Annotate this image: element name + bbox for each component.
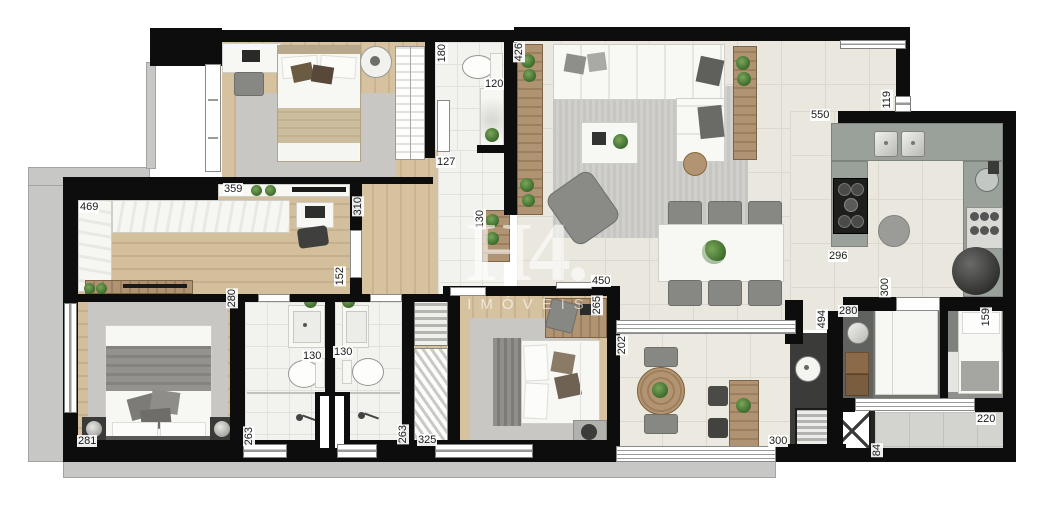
speaker-icon [581, 424, 597, 440]
dimension-label: 450 [591, 275, 611, 287]
sink-drain [911, 141, 915, 145]
wall [504, 42, 517, 215]
kitchen-round-appliance [952, 247, 1000, 295]
bathroom1-sink-counter [288, 305, 325, 348]
dimension-label: 159 [980, 307, 992, 327]
bedroom1-bed [277, 45, 361, 162]
dimension-label: 220 [976, 413, 996, 425]
dimension-label: 300 [879, 277, 891, 297]
plant-icon [520, 178, 534, 192]
dimension-label: 180 [436, 43, 448, 63]
dimension-label: 494 [816, 309, 828, 329]
toilet-tank [342, 360, 352, 384]
wall [827, 398, 855, 412]
wall [940, 311, 948, 398]
bedroom2-bed [105, 325, 212, 440]
balcony-chair [644, 347, 678, 367]
wall [425, 42, 435, 158]
wall [607, 294, 620, 450]
bedroom1-laptop [242, 50, 260, 62]
wall [220, 30, 514, 42]
plant-icon [523, 69, 536, 82]
plant-icon [84, 283, 95, 294]
plant-icon [265, 185, 276, 196]
table-seam [892, 306, 893, 394]
sink-drain [303, 323, 307, 327]
suite2-bed-headboard [493, 338, 521, 426]
laundry-basket [845, 352, 869, 374]
dimension-label: 202 [616, 335, 628, 355]
plant-icon [486, 232, 499, 245]
bathroom2-door [370, 294, 402, 302]
basin [346, 311, 367, 343]
dimension-label: 130 [333, 346, 353, 358]
laundry-sliding-door [855, 398, 975, 411]
wall [150, 28, 222, 66]
service-room-mat [948, 352, 958, 392]
tv-room-chair [297, 225, 329, 249]
plant-icon [736, 56, 750, 70]
side-tray-table [683, 152, 707, 176]
dimension-label: 84 [871, 443, 883, 457]
dining-chair [748, 280, 782, 306]
knob [980, 226, 989, 235]
dimension-label: 263 [397, 424, 409, 444]
bedroom1-chair [234, 72, 264, 96]
bathroom2-sink-counter [342, 305, 369, 348]
hall-door-leaf [556, 282, 592, 289]
balcony-bench [729, 380, 759, 448]
bed-blanket [106, 346, 211, 391]
knob [970, 212, 979, 221]
laundry-door [896, 297, 940, 311]
toilet-tank [315, 358, 325, 388]
dimension-label: 300 [768, 435, 788, 447]
dimension-label: 325 [417, 434, 437, 446]
window [435, 444, 533, 458]
balcony-stool [708, 418, 728, 438]
wall [838, 111, 1016, 123]
door-line [208, 99, 218, 101]
bed-accent-pillow [311, 64, 334, 84]
laundry-sink-icon [847, 322, 869, 344]
wall [448, 294, 460, 440]
sofa-pillow [564, 53, 587, 74]
toilet-bowl [352, 358, 384, 386]
dimension-label: 127 [436, 156, 456, 168]
sink-drain [804, 365, 809, 370]
dimension-label: 280 [226, 288, 238, 308]
dimension-label: 280 [838, 305, 858, 317]
bed-foot [280, 143, 358, 159]
plant-icon [613, 134, 628, 149]
burner [838, 215, 851, 228]
suite2-bed [521, 340, 600, 424]
duvet-seam [580, 343, 581, 423]
dimension-label: 263 [243, 426, 255, 446]
suite2-door [450, 287, 486, 296]
wall [218, 177, 433, 184]
bed-pillow [523, 344, 549, 381]
plant-icon [736, 398, 751, 413]
pocket-door [320, 396, 329, 448]
window [895, 96, 911, 112]
balcony-stool [708, 386, 728, 406]
entry-door [205, 64, 221, 172]
bed-headboard [278, 46, 360, 54]
dimension-label: 130 [302, 350, 322, 362]
burner [844, 198, 858, 212]
floor-plan: 1801204265501191273594693101301522804502… [0, 0, 1050, 518]
dimension-label: 296 [828, 250, 848, 262]
tv-room-sofa-left [78, 200, 112, 292]
plant-icon [251, 185, 262, 196]
bedroom1-wardrobe [395, 46, 425, 160]
burner [851, 215, 864, 228]
dimension-label: 281 [77, 435, 97, 447]
balcony-railing [616, 446, 776, 462]
window [840, 40, 906, 49]
kitchen-appliance-tray [966, 207, 1003, 249]
plant-icon [96, 283, 107, 294]
knob [990, 212, 999, 221]
dimension-label: 265 [591, 295, 603, 315]
wardrobe-divider [410, 47, 411, 159]
plant-icon [486, 214, 499, 227]
knob [980, 212, 989, 221]
coffee-table-book [592, 132, 606, 145]
sofa-pillow [587, 52, 607, 72]
dimension-label: 152 [334, 266, 346, 286]
dimension-label: 130 [474, 209, 486, 229]
dimension-label: 359 [223, 183, 243, 195]
lavabo-door [437, 100, 450, 152]
wall [940, 297, 1003, 311]
balcony-sliding-door [616, 320, 796, 334]
laundry-basket [845, 374, 869, 396]
wall [63, 177, 218, 200]
wall [827, 311, 843, 460]
window [337, 444, 377, 458]
dimension-label: 550 [810, 109, 830, 121]
wall [325, 294, 335, 394]
slab-edge-entry [146, 62, 156, 169]
tv-icon [292, 187, 346, 192]
side-table-bowl [370, 56, 380, 66]
wall [975, 398, 1003, 412]
dimension-label: 119 [881, 90, 893, 110]
coffee-table [581, 122, 638, 164]
wall [1003, 111, 1016, 460]
sink-drain [884, 141, 888, 145]
wall [402, 294, 414, 440]
sofa-pillow [697, 105, 724, 139]
knob [990, 226, 999, 235]
tv-room-sofa-top [112, 200, 290, 233]
bed-blanket [278, 108, 360, 143]
plant-icon [737, 72, 751, 86]
wall [514, 27, 910, 41]
tv-room-door [350, 230, 362, 278]
wall [843, 448, 1016, 462]
balcony-chair [644, 414, 678, 434]
dimension-label: 120 [484, 78, 504, 90]
bed-accent-pillow [554, 373, 582, 400]
coffee-maker-icon [988, 161, 999, 174]
dining-centerpiece [702, 240, 726, 264]
wall-pocket-doors [315, 392, 350, 452]
shower-glass [247, 392, 323, 394]
dining-chair [708, 280, 742, 306]
plant-icon [485, 128, 499, 142]
wall [477, 145, 504, 153]
closet-hanging-rack [414, 348, 448, 446]
plant-icon [652, 382, 668, 398]
door-line [208, 137, 218, 139]
lamp-icon [214, 421, 230, 437]
stove-icon [833, 178, 868, 234]
pouf [878, 215, 910, 247]
bed-pillow [523, 382, 549, 419]
basin [293, 311, 321, 343]
closet-cabinet [414, 296, 448, 346]
burner [838, 183, 851, 196]
window [64, 303, 77, 413]
laundry-table [875, 305, 938, 395]
bed-blanket [961, 361, 999, 391]
knob [970, 226, 979, 235]
tv-room-laptop [305, 206, 325, 218]
dimension-label: 310 [352, 196, 364, 216]
pocket-door [335, 396, 344, 448]
dimension-label: 469 [79, 201, 99, 213]
dining-chair [668, 280, 702, 306]
bathroom1-door [258, 294, 290, 302]
burner [851, 183, 864, 196]
tv-icon [123, 284, 187, 288]
bed-accent-pillow [550, 351, 575, 375]
wall [230, 294, 245, 440]
toilet-tank [490, 53, 503, 79]
slab-edge-left [28, 185, 64, 462]
dimension-label: 426 [513, 42, 525, 62]
plant-icon [522, 194, 535, 207]
